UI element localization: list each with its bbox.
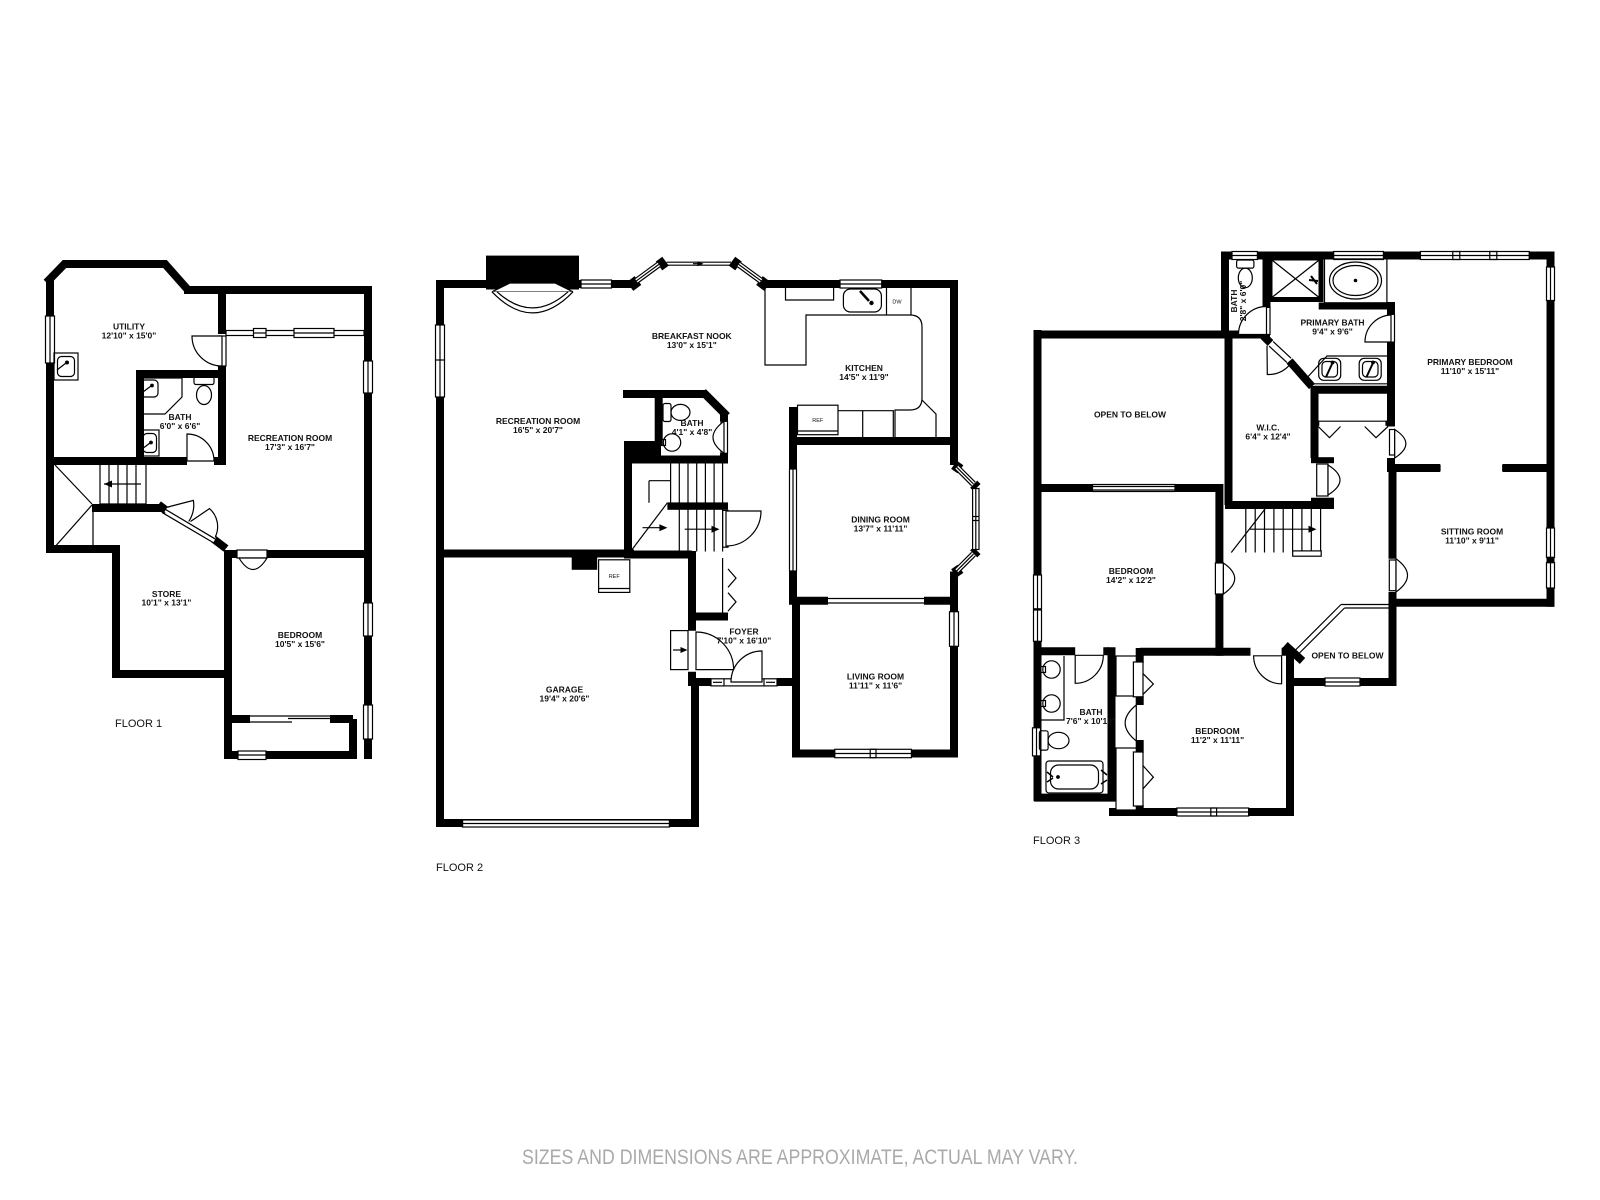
svg-text:FLOOR 1: FLOOR 1 (115, 718, 162, 730)
svg-text:17'3" x 16'7": 17'3" x 16'7" (265, 442, 315, 452)
svg-text:11'10" x 9'11": 11'10" x 9'11" (1445, 536, 1499, 546)
svg-text:13'0" x 15'1": 13'0" x 15'1" (667, 340, 717, 350)
svg-text:13'7" x 11'11": 13'7" x 11'11" (854, 524, 908, 534)
svg-text:OPEN TO BELOW: OPEN TO BELOW (1311, 651, 1384, 661)
svg-text:REF: REF (812, 418, 824, 424)
svg-text:10'1" x 13'1": 10'1" x 13'1" (142, 598, 192, 608)
svg-text:12'10" x 15'0": 12'10" x 15'0" (102, 331, 157, 341)
svg-text:6'0" x 6'6": 6'0" x 6'6" (160, 421, 200, 431)
svg-text:7'10" x 16'10": 7'10" x 16'10" (717, 636, 772, 646)
svg-text:FLOOR 3: FLOOR 3 (1033, 835, 1080, 847)
svg-text:16'5" x 20'7": 16'5" x 20'7" (513, 425, 563, 435)
svg-text:11'2" x 11'11": 11'2" x 11'11" (1191, 735, 1244, 745)
svg-text:19'4" x 20'6": 19'4" x 20'6" (540, 694, 590, 704)
svg-text:11'10" x 15'11": 11'10" x 15'11" (1441, 366, 1499, 376)
svg-text:14'2" x 12'2": 14'2" x 12'2" (1106, 575, 1156, 585)
svg-text:6'4" x 12'4": 6'4" x 12'4" (1245, 432, 1290, 442)
svg-text:FLOOR 2: FLOOR 2 (436, 862, 483, 874)
svg-text:2'8" x 6'0": 2'8" x 6'0" (1238, 281, 1248, 321)
svg-text:9'4" x 9'6": 9'4" x 9'6" (1312, 327, 1352, 337)
svg-text:4'1" x 4'8": 4'1" x 4'8" (672, 427, 712, 437)
svg-text:OPEN TO BELOW: OPEN TO BELOW (1094, 410, 1167, 420)
svg-text:SIZES AND DIMENSIONS ARE APPRO: SIZES AND DIMENSIONS ARE APPROXIMATE, AC… (522, 1146, 1078, 1169)
svg-text:7'6" x 10'10": 7'6" x 10'10" (1066, 716, 1116, 726)
svg-text:10'5" x 15'6": 10'5" x 15'6" (275, 639, 325, 649)
svg-text:REF: REF (609, 574, 621, 580)
svg-text:11'11" x 11'6": 11'11" x 11'6" (849, 681, 902, 691)
svg-text:DW: DW (892, 300, 902, 306)
svg-text:14'5" x 11'9": 14'5" x 11'9" (839, 372, 888, 382)
